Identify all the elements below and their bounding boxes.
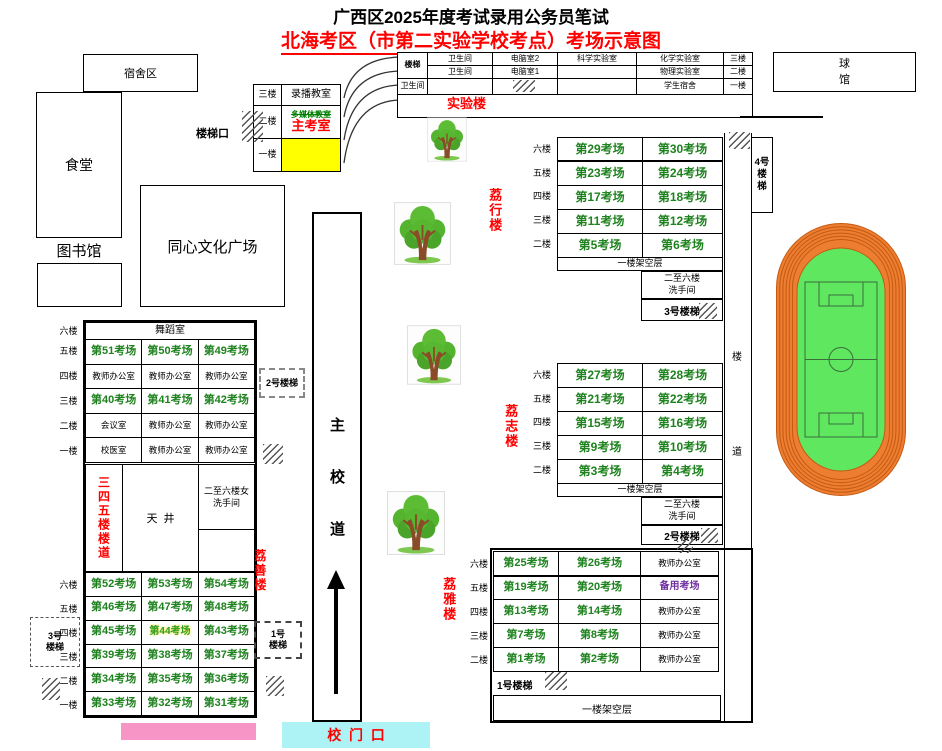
exam-room: 第20考场 [559,576,640,599]
exam-room: 第40考场 [86,389,141,413]
exam-room: 第5考场 [558,234,642,257]
exam-room: 第50考场 [142,340,197,364]
floor-label: 四楼 [466,599,492,623]
floor-label: 三楼 [529,434,555,458]
computer-room-2: 电脑室2 [493,53,557,65]
building-lab-label: 实验楼 [447,97,486,111]
ball-hall: 球 馆 [773,52,916,92]
exam-room: 第35考场 [142,668,197,691]
lizhi-washroom: 二至六楼 洗手间 [641,497,723,525]
exam-room: 第30考场 [643,138,722,161]
subtitle-rest: 考场示意图 [566,31,661,52]
stair-hatch-icon [263,444,283,464]
floor-label: 一楼 [54,438,83,463]
page-title: 广西区2025年度考试录用公务员笔试 [0,3,942,28]
stair-2-west: 2号楼梯 [259,368,305,398]
floor-label: 三楼 [466,624,492,648]
page-subtitle: 北海考区（市第二实验学校考点）考场示意图 [0,26,942,53]
main-road: 主 校 道 [312,212,362,722]
exam-room: 第52考场 [86,573,141,596]
women-washroom: 二至六楼女 洗手间 [198,464,255,530]
stair-1-label: 1号楼梯 [497,677,533,692]
exam-room: 第54考场 [199,573,254,596]
stair-entrance-label: 楼梯口 [196,125,229,141]
exam-room: 第42考场 [199,389,254,413]
campus-map: 广西区2025年度考试录用公务员笔试 北海考区（市第二实验学校考点）考场示意图 … [0,0,942,751]
building-lishan-lower: 第52考场 第53考场 第54考场 第46考场 第47考场 第48考场 第45考… [85,572,255,716]
building-liya: 第25考场 第26考场 教师办公室 第19考场 第20考场 备用考场 第13考场… [493,551,719,672]
stair-3-west-label: 3号 楼梯 [46,631,64,653]
floor-label: 五楼 [529,387,555,411]
building-lab: 卫生间 电脑室2 楼梯 科学实验室 化学实验室 三楼 卫生间 电脑室1 物理实验… [397,52,753,95]
floor-label: 五楼 [54,338,83,363]
exam-room: 第15考场 [558,412,642,435]
stair-1-west: 1号 楼梯 [254,621,302,659]
empty-cell [558,79,636,94]
floor-label: 三楼 [724,53,752,65]
corridor-345-label: 三四五楼楼道 [85,464,123,572]
boundary-line [740,116,823,118]
library-label: 图书馆 [36,240,122,261]
floor-label: 二楼 [724,66,752,78]
exam-room: 第17考场 [558,186,642,209]
science-lab: 科学实验室 [558,53,636,65]
exam-room: 第4考场 [643,460,722,483]
empty-cell [558,66,636,78]
ground-floor-room [282,139,340,171]
exam-room: 第27考场 [558,364,642,387]
school-gate: 校 门 口 [282,722,430,748]
exam-room: 第34考场 [86,668,141,691]
floor-label: 五楼 [529,161,555,185]
corridor-char: 道 [732,443,742,458]
exam-room: 第47考场 [142,597,197,620]
gate-pink-bar [121,723,256,740]
building-lixing: 第29考场 第30考场 第23考场 第24考场 第17考场 第18考场 第11考… [557,137,723,271]
stair-hatch-icon [699,303,717,319]
floor-label: 二楼 [529,457,555,481]
exam-room: 第51考场 [86,340,141,364]
floor-label: 四楼 [529,410,555,434]
teacher-office: 教师办公室 [86,365,141,389]
floor-label: 六楼 [54,572,83,596]
exam-room: 第3考场 [558,460,642,483]
running-track [775,222,907,497]
divider-line [557,160,723,162]
physics-lab: 物理实验室 [637,66,723,78]
ground-open-floor: 一楼架空层 [558,258,722,270]
exam-room: 第36考场 [199,668,254,691]
culture-plaza: 同心文化广场 [140,185,285,307]
lab-stair: 楼梯 [398,53,427,78]
floor-label: 三楼 [54,388,83,413]
stair-connector-arcs [338,46,402,168]
exam-room: 第12考场 [643,210,722,233]
stair-3: 3号楼梯 [641,299,723,321]
teacher-office: 教师办公室 [142,438,197,462]
corridor-char: 楼 [732,348,742,363]
exam-room: 第11考场 [558,210,642,233]
chief-exam-room: 多媒体教室 主考室 [282,106,340,138]
stair-hatch-icon [42,678,60,700]
exam-room: 第22考场 [643,388,722,411]
exam-room: 第18考场 [643,186,722,209]
floor-label: 六楼 [54,322,83,338]
student-dorm: 学生宿舍 [637,79,723,94]
empty-cell [428,79,492,94]
exam-room: 第46考场 [86,597,141,620]
exam-room: 第25考场 [494,552,558,575]
exam-room: 第29考场 [558,138,642,161]
exam-room: 第49考场 [199,340,254,364]
ground-open-floor: 一楼架空层 [558,484,722,496]
floor-label: 六楼 [529,137,555,161]
meeting-room: 会议室 [86,414,141,438]
teacher-office: 教师办公室 [142,414,197,438]
stair-hatch-icon [513,80,535,92]
tree-icon [394,202,451,265]
exam-room: 第16考场 [643,412,722,435]
stair-hatch-icon [266,676,284,696]
chief-exam-office-label: 主考室 [291,119,330,133]
exam-room: 第1考场 [494,648,558,671]
exam-room: 第14考场 [559,600,640,623]
stair-1-west-label: 1号 楼梯 [269,629,287,651]
stair-3-west: 3号 楼梯 [30,617,80,667]
dormitory-area: 宿舍区 [83,54,198,92]
teacher-office: 教师办公室 [142,365,197,389]
up-arrow-icon [327,570,345,589]
building-lizhi: 第27考场 第28考场 第21考场 第22考场 第15考场 第16考场 第9考场… [557,363,723,497]
lizhi-floors: 六楼 五楼 四楼 三楼 二楼 [529,363,555,481]
exam-room: 第10考场 [643,436,722,459]
floor-label: 二楼 [54,413,83,438]
teacher-office: 教师办公室 [199,365,254,389]
tree-icon [407,324,461,386]
exam-room: 第31考场 [199,692,254,715]
building-liya-label: 荔雅楼 [441,577,455,622]
clinic-room: 校医室 [86,438,141,462]
exam-room: 第41考场 [142,389,197,413]
exam-room: 第9考场 [558,436,642,459]
building-admin: 三楼 录播教室 二楼 多媒体教室 主考室 一楼 [253,84,341,172]
toilet: 卫生间 [398,79,427,94]
exam-room: 第26考场 [559,552,640,575]
stair-3-label: 3号楼梯 [664,303,700,318]
floor-label: 六楼 [466,551,492,575]
exam-room: 第53考场 [142,573,197,596]
stair-4: 4号 楼 梯 [751,137,773,213]
exam-room: 第21考场 [558,388,642,411]
exam-room: 第38考场 [142,645,197,668]
recording-room: 录播教室 [282,85,340,105]
teacher-office: 教师办公室 [199,438,254,462]
exam-room: 第19考场 [494,576,558,599]
exam-room: 第7考场 [494,624,558,647]
exam-room: 第24考场 [643,162,722,185]
exam-room: 第13考场 [494,600,558,623]
tree-icon [427,117,467,162]
exam-room: 第39考场 [86,645,141,668]
liya-ground-open-floor: 一楼架空层 [493,695,721,721]
exam-room: 第8考场 [559,624,640,647]
stair-2-west-label: 2号楼梯 [266,378,298,389]
stair-hatch-icon [677,541,693,553]
building-lizhi-label: 荔志楼 [503,404,517,449]
floor-label: 四楼 [54,363,83,388]
exam-room: 第2考场 [559,648,640,671]
floor-label: 二楼 [529,231,555,255]
chemistry-lab: 化学实验室 [637,53,723,65]
computer-room-1: 电脑室1 [493,66,557,78]
lixing-floors: 六楼 五楼 四楼 三楼 二楼 [529,137,555,255]
exam-room: 第32考场 [142,692,197,715]
library-box [37,263,122,307]
floor-label: 一楼 [254,139,281,171]
exam-room: 第44考场 [142,621,197,644]
canteen: 食堂 [36,92,122,238]
empty-cell [198,529,255,572]
teacher-office: 教师办公室 [641,648,718,671]
exam-room: 第33考场 [86,692,141,715]
road-char: 主 [330,414,345,435]
exam-room: 第48考场 [199,597,254,620]
toilet: 卫生间 [428,66,492,78]
stair-hatch-icon [545,672,567,690]
teacher-office: 教师办公室 [641,600,718,623]
divider-line [493,575,719,577]
lab-stair-hatch-cell [493,79,557,94]
exam-room: 第45考场 [86,621,141,644]
floor-label: 二楼 [466,648,492,672]
road-char: 道 [330,518,345,539]
teacher-office: 教师办公室 [641,624,718,647]
floor-label: 三楼 [254,85,281,105]
exam-room: 第43考场 [199,621,254,644]
up-arrow-shaft [334,588,338,694]
floor-label: 六楼 [529,363,555,387]
floor-label: 四楼 [529,184,555,208]
floor-label: 三楼 [529,208,555,232]
stair-hatch-icon [729,132,750,149]
road-char: 校 [330,466,345,487]
exam-room: 第28考场 [643,364,722,387]
toilet: 卫生间 [428,53,492,65]
liya-floors: 六楼 五楼 四楼 三楼 二楼 [466,551,492,672]
backup-exam-room: 备用考场 [641,576,718,599]
teacher-office: 教师办公室 [641,552,718,575]
exam-room: 第37考场 [199,645,254,668]
tree-icon [387,490,445,556]
building-lishan-upper: 舞蹈室 第51考场 第50考场 第49考场 教师办公室 教师办公室 教师办公室 … [85,322,255,463]
building-lixing-label: 荔行楼 [487,188,501,233]
courtyard: 天 井 [122,464,199,572]
floor-label: 一楼 [724,79,752,94]
exam-room: 第23考场 [558,162,642,185]
stair-hatch-icon [701,528,718,543]
stair-hatch-icon [242,111,263,142]
dance-room: 舞蹈室 [86,323,254,339]
teacher-office: 教师办公室 [199,414,254,438]
lixing-washroom: 二至六楼 洗手间 [641,271,723,299]
floor-label: 五楼 [466,575,492,599]
lishan-upper-floors: 六楼 五楼 四楼 三楼 二楼 一楼 [54,322,83,463]
exam-room: 第6考场 [643,234,722,257]
